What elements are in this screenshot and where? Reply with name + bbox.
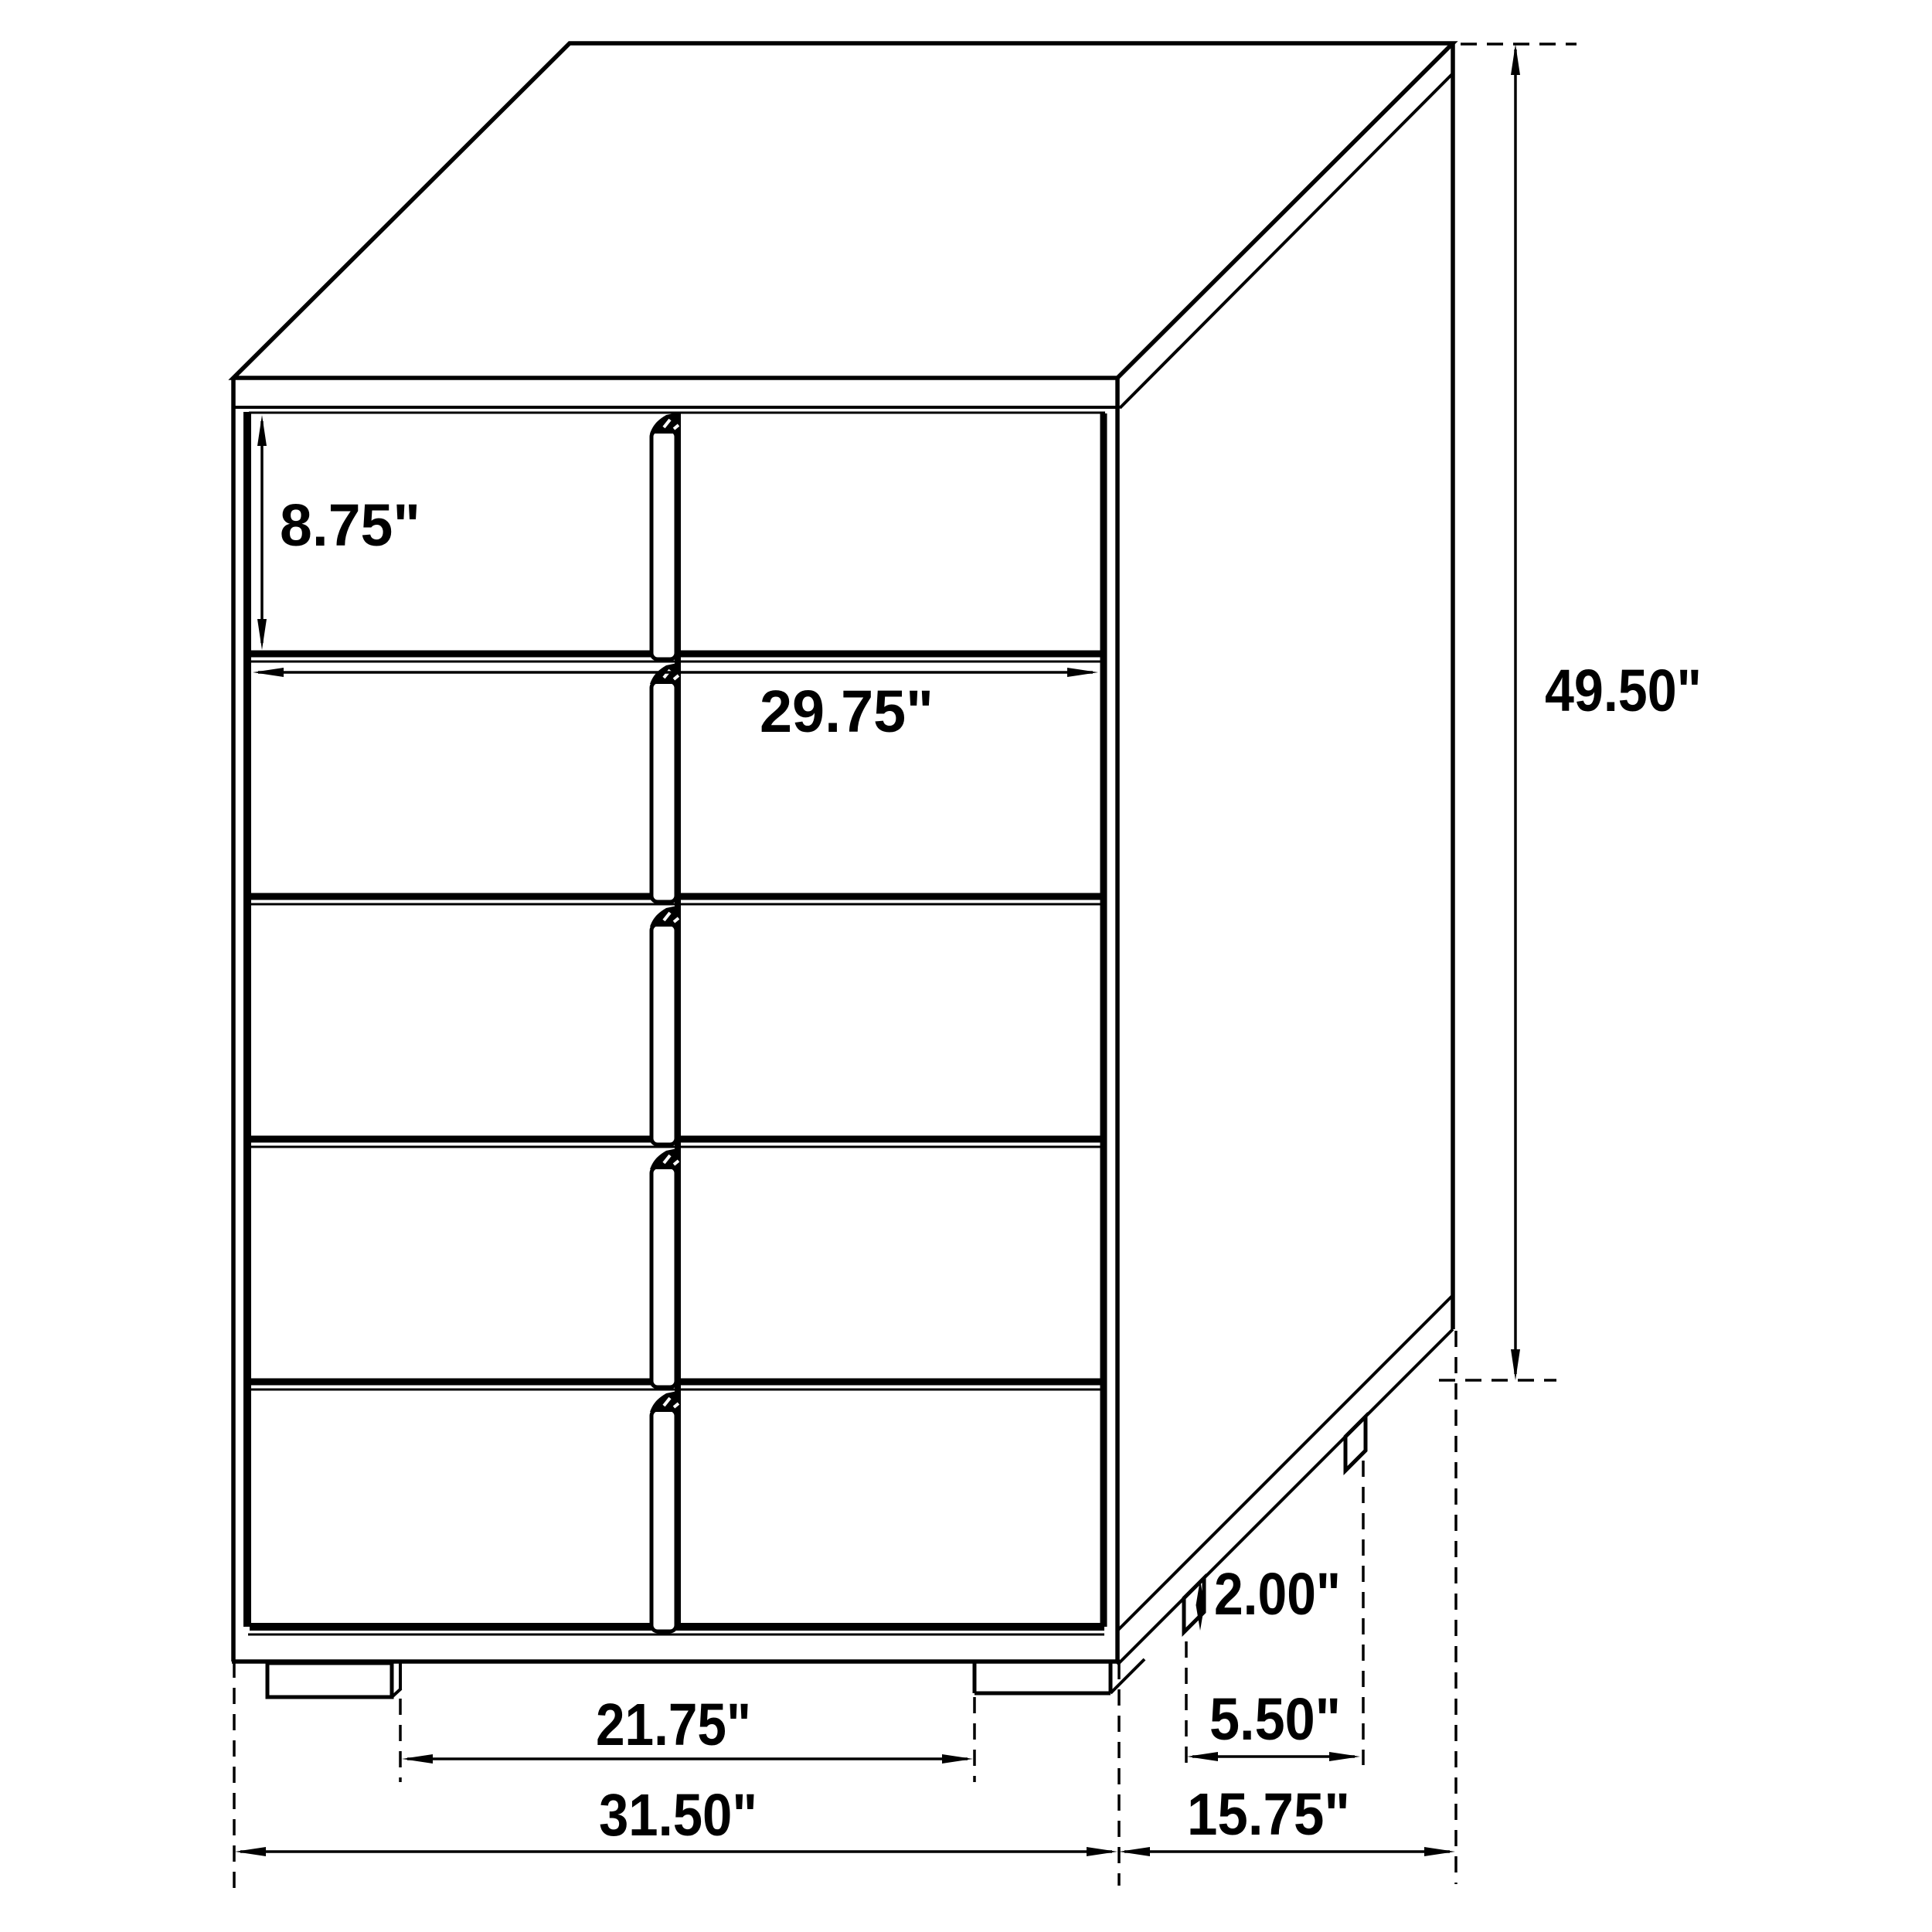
svg-text:49.50": 49.50" [1545,658,1702,724]
svg-text:5.50": 5.50" [1209,1686,1341,1753]
svg-text:21.75": 21.75" [596,1692,751,1758]
svg-text:2.00": 2.00" [1214,1561,1341,1628]
svg-text:31.50": 31.50" [599,1782,757,1849]
svg-text:8.75": 8.75" [280,492,420,559]
svg-text:29.75": 29.75" [760,679,934,745]
svg-text:15.75": 15.75" [1187,1781,1350,1848]
